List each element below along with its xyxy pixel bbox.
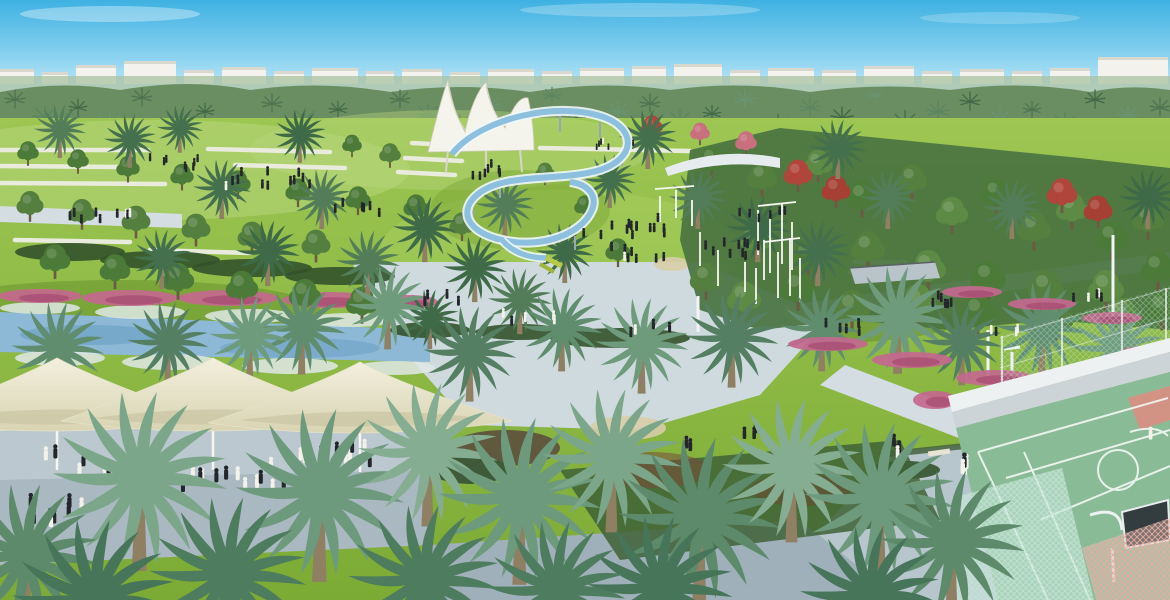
person <box>261 179 264 188</box>
building-roof <box>124 61 176 64</box>
person <box>369 201 372 210</box>
person <box>610 242 613 251</box>
person <box>704 240 707 249</box>
person <box>308 179 311 188</box>
person <box>741 248 744 257</box>
person <box>73 208 76 217</box>
person <box>649 223 652 232</box>
person <box>663 228 666 237</box>
person <box>487 164 490 173</box>
person <box>423 296 426 306</box>
terrace-step <box>0 166 120 167</box>
person <box>490 159 493 168</box>
person <box>712 246 715 255</box>
person <box>163 157 166 165</box>
person <box>80 214 83 223</box>
building-roof <box>674 64 722 67</box>
person <box>940 293 943 302</box>
person <box>635 222 638 231</box>
person <box>259 470 263 484</box>
person <box>224 465 228 479</box>
person <box>99 214 102 223</box>
person <box>1016 324 1019 333</box>
person <box>723 237 726 246</box>
person <box>255 474 259 488</box>
person <box>214 468 218 482</box>
building-roof <box>730 70 760 73</box>
building-roof <box>312 68 358 71</box>
person <box>600 230 603 239</box>
person <box>600 138 602 144</box>
building-roof <box>222 67 266 70</box>
person <box>950 298 953 307</box>
person <box>341 198 344 207</box>
person <box>193 158 196 166</box>
person <box>960 459 965 474</box>
person <box>289 176 292 185</box>
person <box>634 324 637 335</box>
person <box>596 144 598 150</box>
person <box>582 228 585 237</box>
person <box>116 208 119 217</box>
person <box>611 220 614 229</box>
person <box>362 203 365 212</box>
park-scene <box>0 0 1170 600</box>
person <box>598 140 600 146</box>
person <box>552 310 555 320</box>
person <box>44 446 48 460</box>
terrace-step <box>235 165 345 168</box>
person <box>302 173 305 182</box>
person <box>627 253 630 262</box>
person <box>769 210 772 219</box>
person <box>1072 293 1075 302</box>
person <box>858 326 861 336</box>
flower-bed <box>958 290 994 297</box>
building-roof <box>42 72 68 75</box>
building-roof <box>76 65 116 68</box>
person <box>196 154 199 162</box>
person <box>236 466 240 480</box>
person <box>472 171 475 180</box>
terrace-step <box>405 158 462 161</box>
person <box>653 223 656 232</box>
flower-bed <box>892 357 940 367</box>
person <box>657 213 660 222</box>
person <box>602 138 604 144</box>
person <box>1100 292 1103 301</box>
sand-patch <box>654 257 690 271</box>
person <box>1149 427 1153 440</box>
terrace-step <box>15 240 130 242</box>
person <box>778 206 781 215</box>
building-roof <box>1098 57 1168 60</box>
person <box>334 204 337 213</box>
person <box>824 318 827 328</box>
building-roof <box>366 71 394 74</box>
person <box>737 240 740 249</box>
person <box>607 143 609 149</box>
building-roof <box>274 71 304 74</box>
park-rendering-image <box>0 0 1170 600</box>
flower-bed <box>1026 302 1067 309</box>
person <box>631 230 634 239</box>
person <box>688 438 692 451</box>
person <box>128 208 131 217</box>
person <box>185 164 188 172</box>
person <box>845 323 848 333</box>
person <box>630 247 633 256</box>
building-roof <box>960 69 1004 72</box>
person <box>1087 292 1090 301</box>
terrace-step <box>398 172 455 175</box>
terrace-step <box>0 183 165 184</box>
person <box>632 140 634 146</box>
flower-bed <box>808 342 856 350</box>
person <box>757 213 760 222</box>
person <box>990 325 993 334</box>
building-roof <box>0 69 34 72</box>
building-roof <box>632 66 666 69</box>
person <box>445 289 448 299</box>
building-roof <box>768 68 814 71</box>
flower-bed <box>105 295 163 305</box>
building-roof <box>184 70 214 73</box>
person <box>738 208 741 217</box>
building-roof <box>542 71 572 74</box>
person <box>635 254 638 263</box>
person <box>623 252 626 261</box>
person <box>746 239 749 248</box>
person <box>225 181 228 190</box>
person <box>752 427 756 439</box>
ornamental-grass <box>0 302 80 314</box>
person <box>655 253 658 262</box>
person <box>652 319 655 330</box>
person <box>69 211 72 220</box>
building-roof <box>822 70 856 73</box>
person <box>293 175 296 184</box>
building-roof <box>488 69 534 72</box>
person <box>53 444 57 458</box>
person <box>748 209 751 218</box>
person <box>502 308 505 318</box>
building-roof <box>402 69 442 72</box>
building-roof <box>864 66 914 69</box>
building-roof <box>1012 71 1042 74</box>
flower-bed <box>926 397 952 408</box>
person <box>479 171 482 180</box>
person <box>937 290 940 299</box>
person <box>784 206 787 215</box>
person <box>95 207 98 216</box>
person <box>236 175 239 184</box>
person <box>629 327 632 338</box>
person <box>944 299 947 308</box>
person <box>266 180 269 189</box>
person <box>729 249 732 258</box>
building-roof <box>922 71 952 74</box>
building-roof <box>450 72 480 75</box>
person <box>266 166 269 175</box>
person <box>946 299 949 308</box>
person <box>668 322 671 333</box>
person <box>744 251 747 260</box>
building-roof <box>1050 68 1090 71</box>
person <box>995 327 998 336</box>
person <box>297 167 300 176</box>
person <box>743 238 746 247</box>
person <box>757 241 760 250</box>
person <box>67 493 72 508</box>
person <box>457 296 460 306</box>
person <box>240 167 243 176</box>
person <box>484 168 487 177</box>
person <box>510 316 513 326</box>
person <box>498 168 501 177</box>
person <box>626 224 629 233</box>
person <box>662 252 665 261</box>
building-roof <box>580 68 624 71</box>
person <box>149 153 152 161</box>
person <box>231 176 234 185</box>
person <box>1096 289 1099 298</box>
person <box>892 434 896 447</box>
person <box>743 427 747 439</box>
person <box>524 312 527 322</box>
person <box>426 289 429 299</box>
person <box>378 208 381 217</box>
person <box>630 221 633 230</box>
person <box>165 155 168 163</box>
flower-bed <box>19 294 69 302</box>
person <box>931 298 934 307</box>
person <box>839 323 842 333</box>
